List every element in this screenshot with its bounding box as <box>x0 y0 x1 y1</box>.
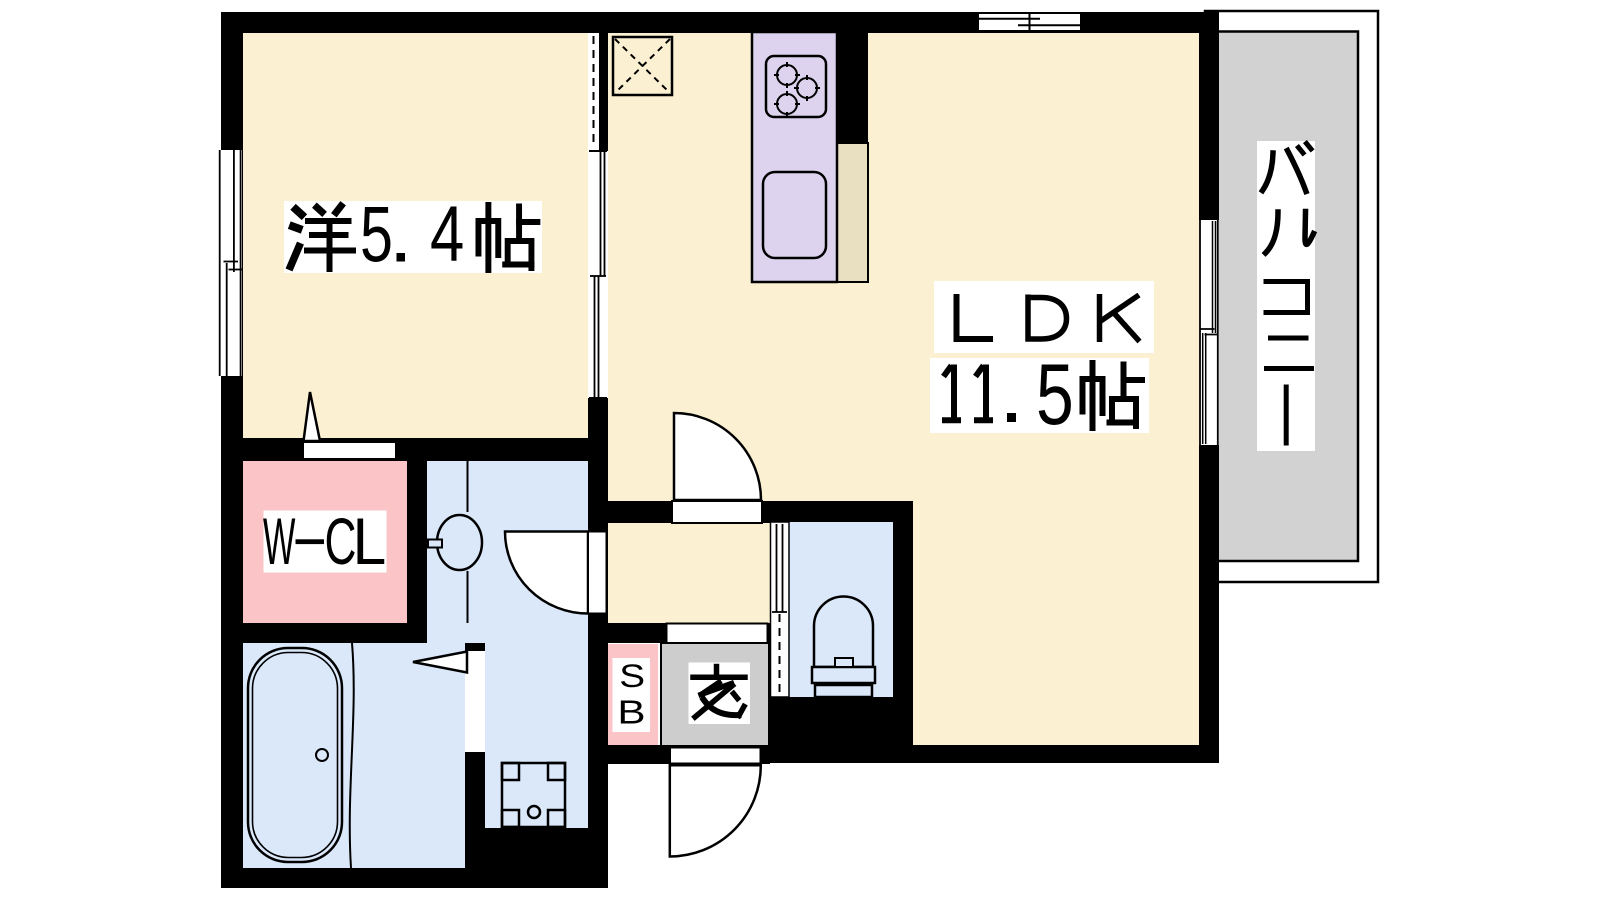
svg-text:5: 5 <box>1036 347 1074 442</box>
svg-text:4: 4 <box>430 191 464 279</box>
svg-text:5: 5 <box>360 190 393 278</box>
svg-text:L: L <box>353 506 387 579</box>
svg-text:W: W <box>263 505 296 579</box>
svg-text:B: B <box>617 694 645 731</box>
svg-text:S: S <box>619 658 645 694</box>
